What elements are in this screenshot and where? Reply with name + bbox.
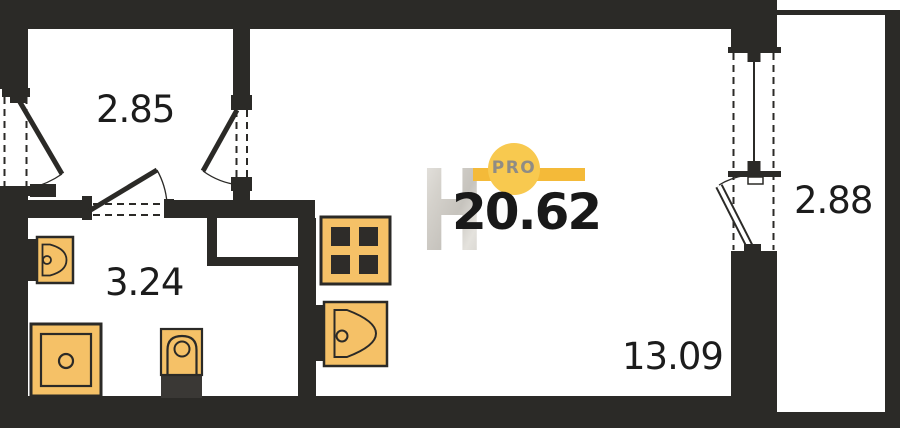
shower-tray-icon: [31, 324, 101, 396]
plan-symbols: [0, 0, 900, 428]
bathroom-area-label: 3.24: [105, 264, 183, 301]
floor-plan: 2.85 3.24 13.09 2.88 H PRO 20.62: [0, 0, 900, 428]
bathroom-sink-icon: [28, 237, 73, 283]
stove-icon: [321, 217, 390, 284]
balcony-door: [719, 174, 777, 258]
living-room-area-label: 13.09: [622, 338, 723, 375]
total-area-label: 20.62: [452, 187, 600, 237]
entry-door: [5, 97, 63, 188]
living-room-door: [203, 110, 247, 185]
bathroom-door: [89, 170, 167, 215]
kitchen-sink-icon: [315, 302, 387, 366]
hallway-area-label: 2.85: [96, 91, 174, 128]
pro-badge-label: PRO: [492, 158, 537, 181]
toilet-icon: [161, 329, 202, 398]
balcony-area-label: 2.88: [794, 182, 872, 219]
